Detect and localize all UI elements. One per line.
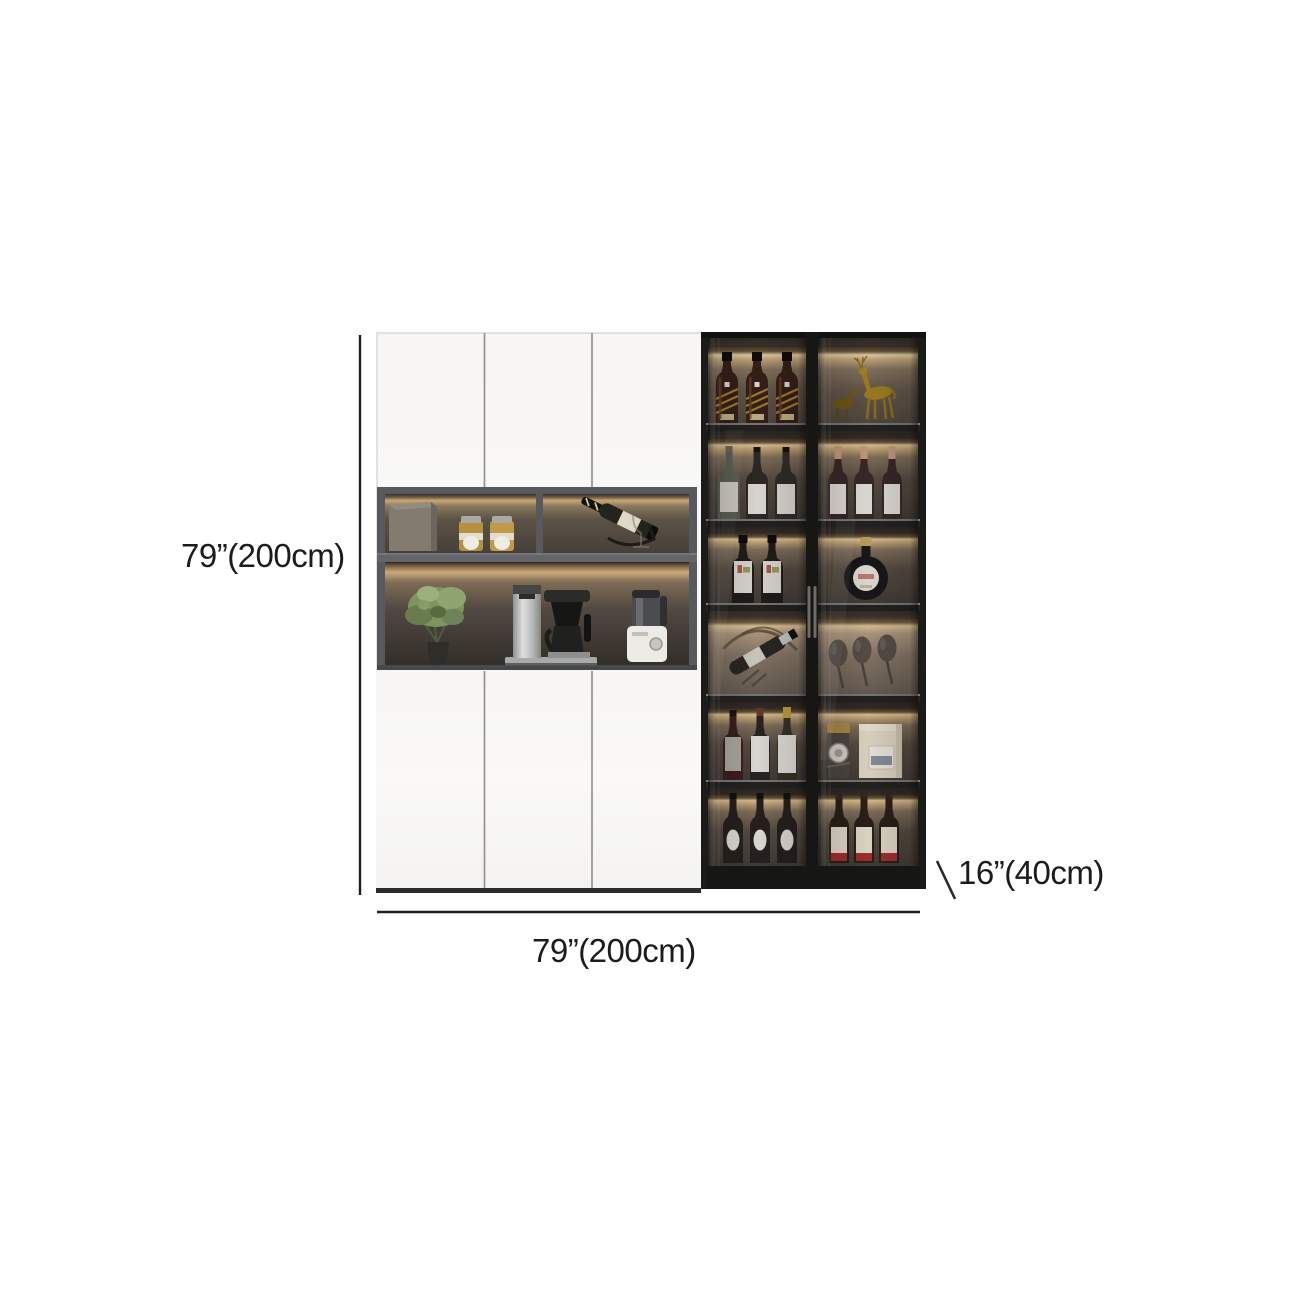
svg-text:16”(40cm): 16”(40cm) [958, 854, 1104, 891]
svg-text:79”(200cm): 79”(200cm) [181, 537, 345, 574]
svg-text:79”(200cm): 79”(200cm) [532, 932, 696, 969]
